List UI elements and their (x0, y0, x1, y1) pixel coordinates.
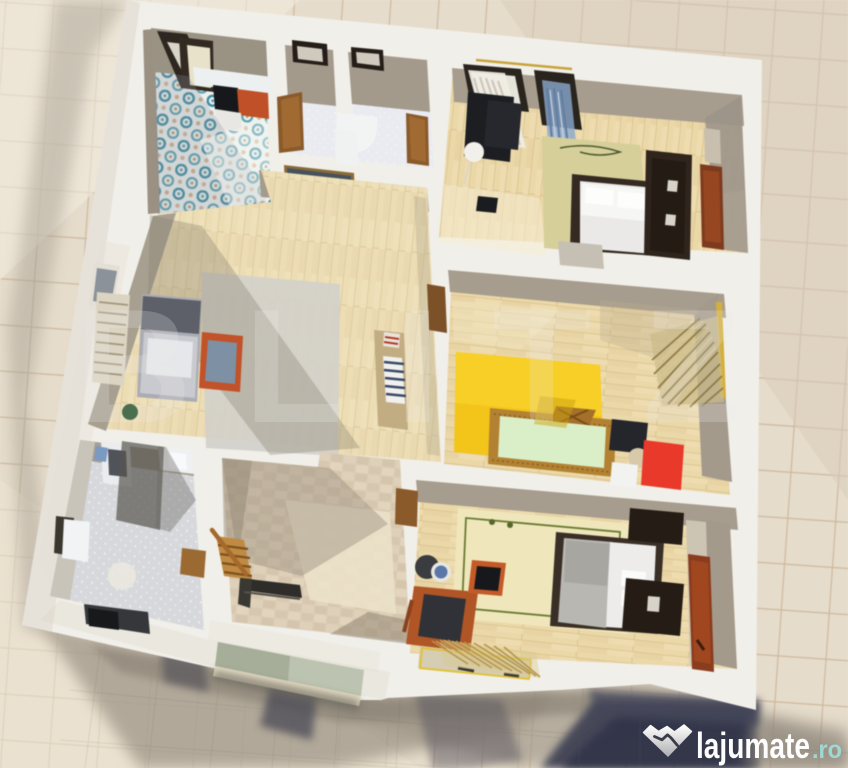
svg-text:lajumate: lajumate (696, 725, 810, 766)
svg-text:.ro: .ro (812, 736, 842, 764)
svg-text:BLITZ: BLITZ (75, 276, 794, 457)
